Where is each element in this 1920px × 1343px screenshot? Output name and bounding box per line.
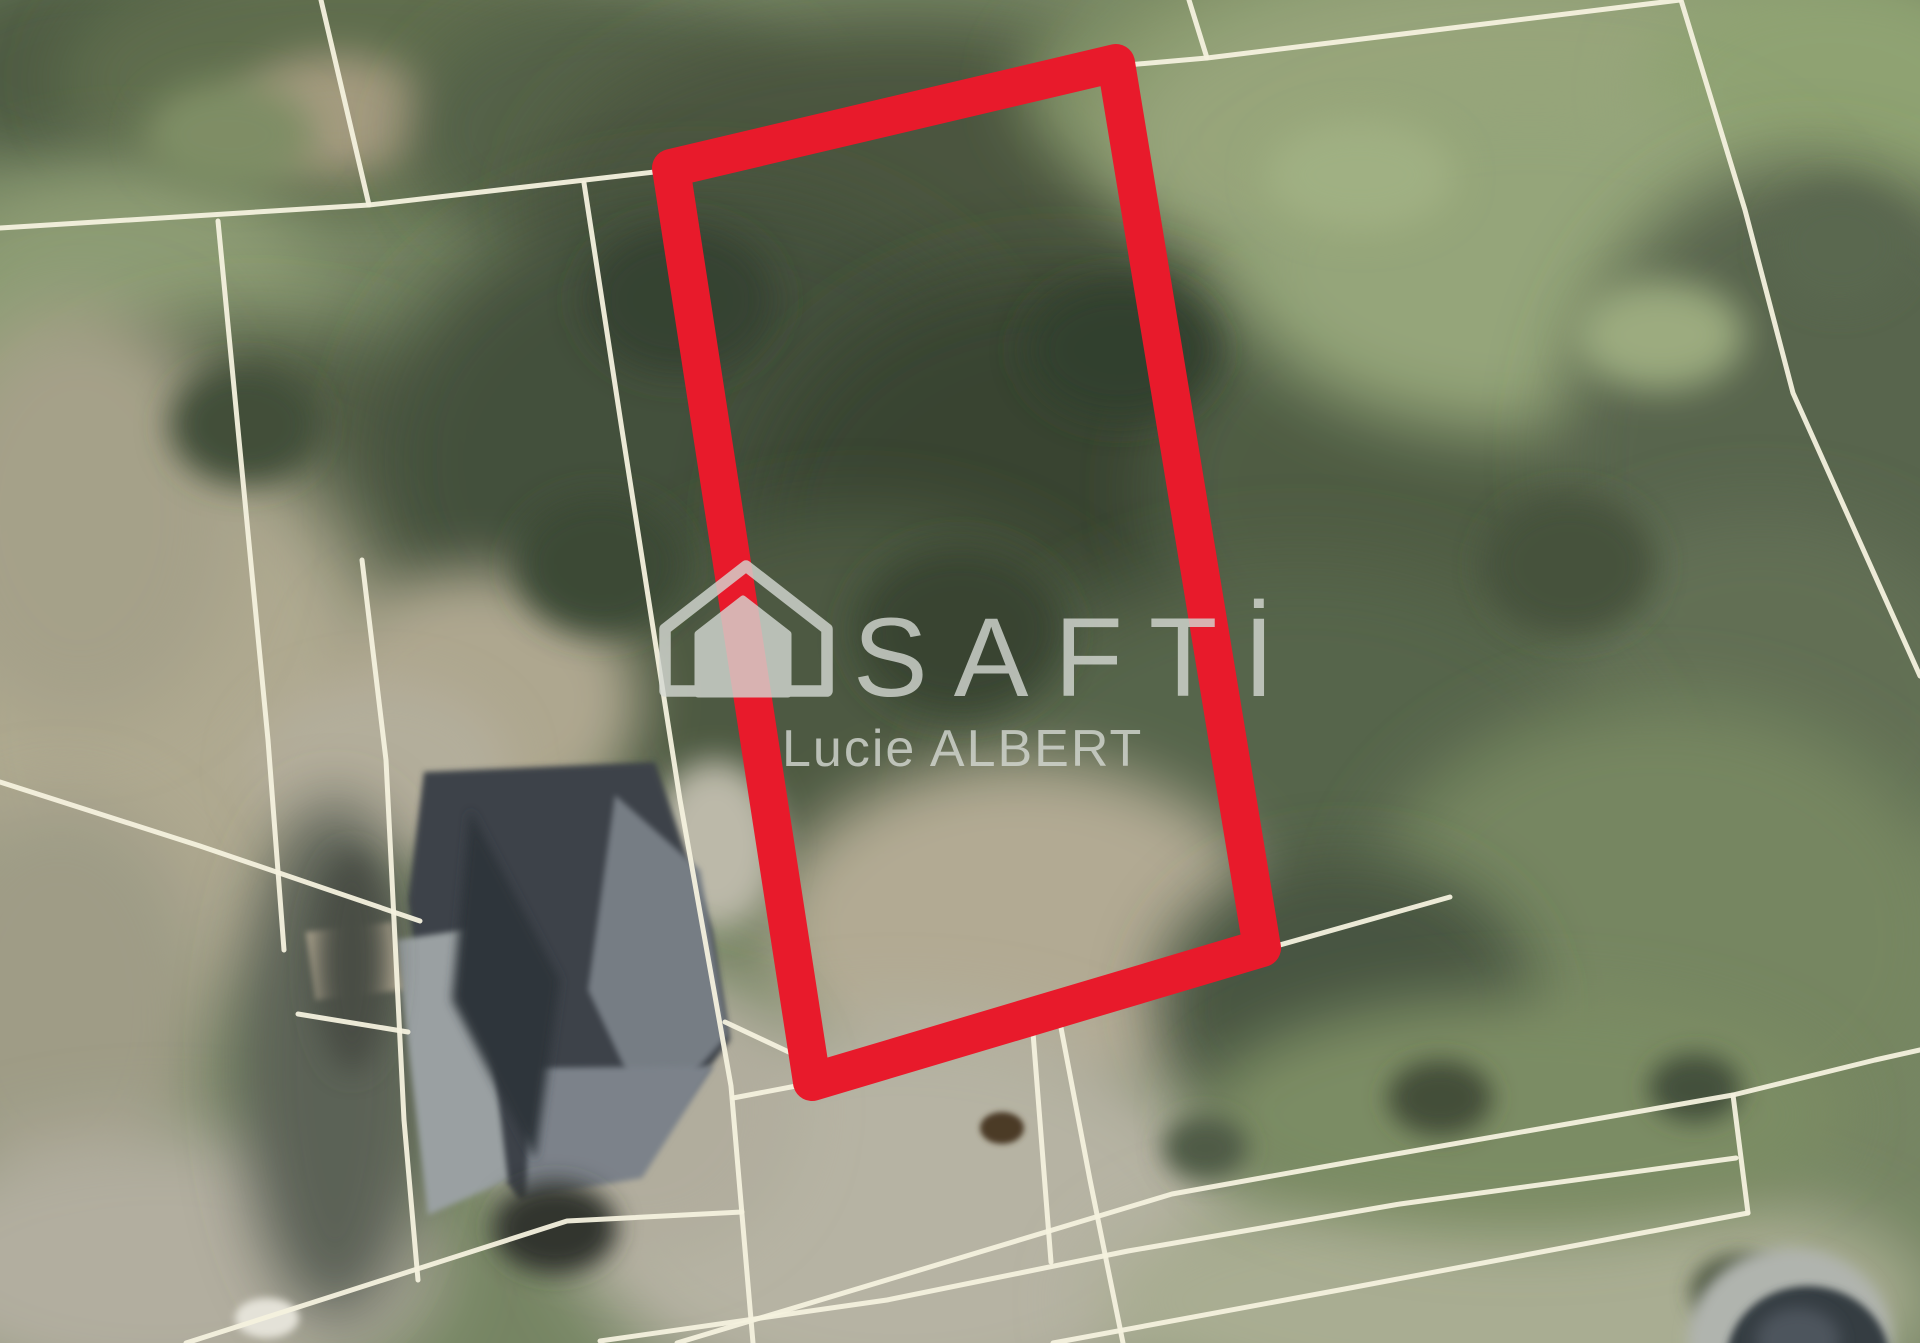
agent-name-text: Lucie ALBERT xyxy=(782,720,1143,778)
aerial-parcel-photo: SAFTİ Lucie ALBERT xyxy=(0,0,1920,1343)
satellite-view: SAFTİ Lucie ALBERT xyxy=(0,0,1920,1343)
brand-text: SAFTİ xyxy=(853,595,1300,720)
